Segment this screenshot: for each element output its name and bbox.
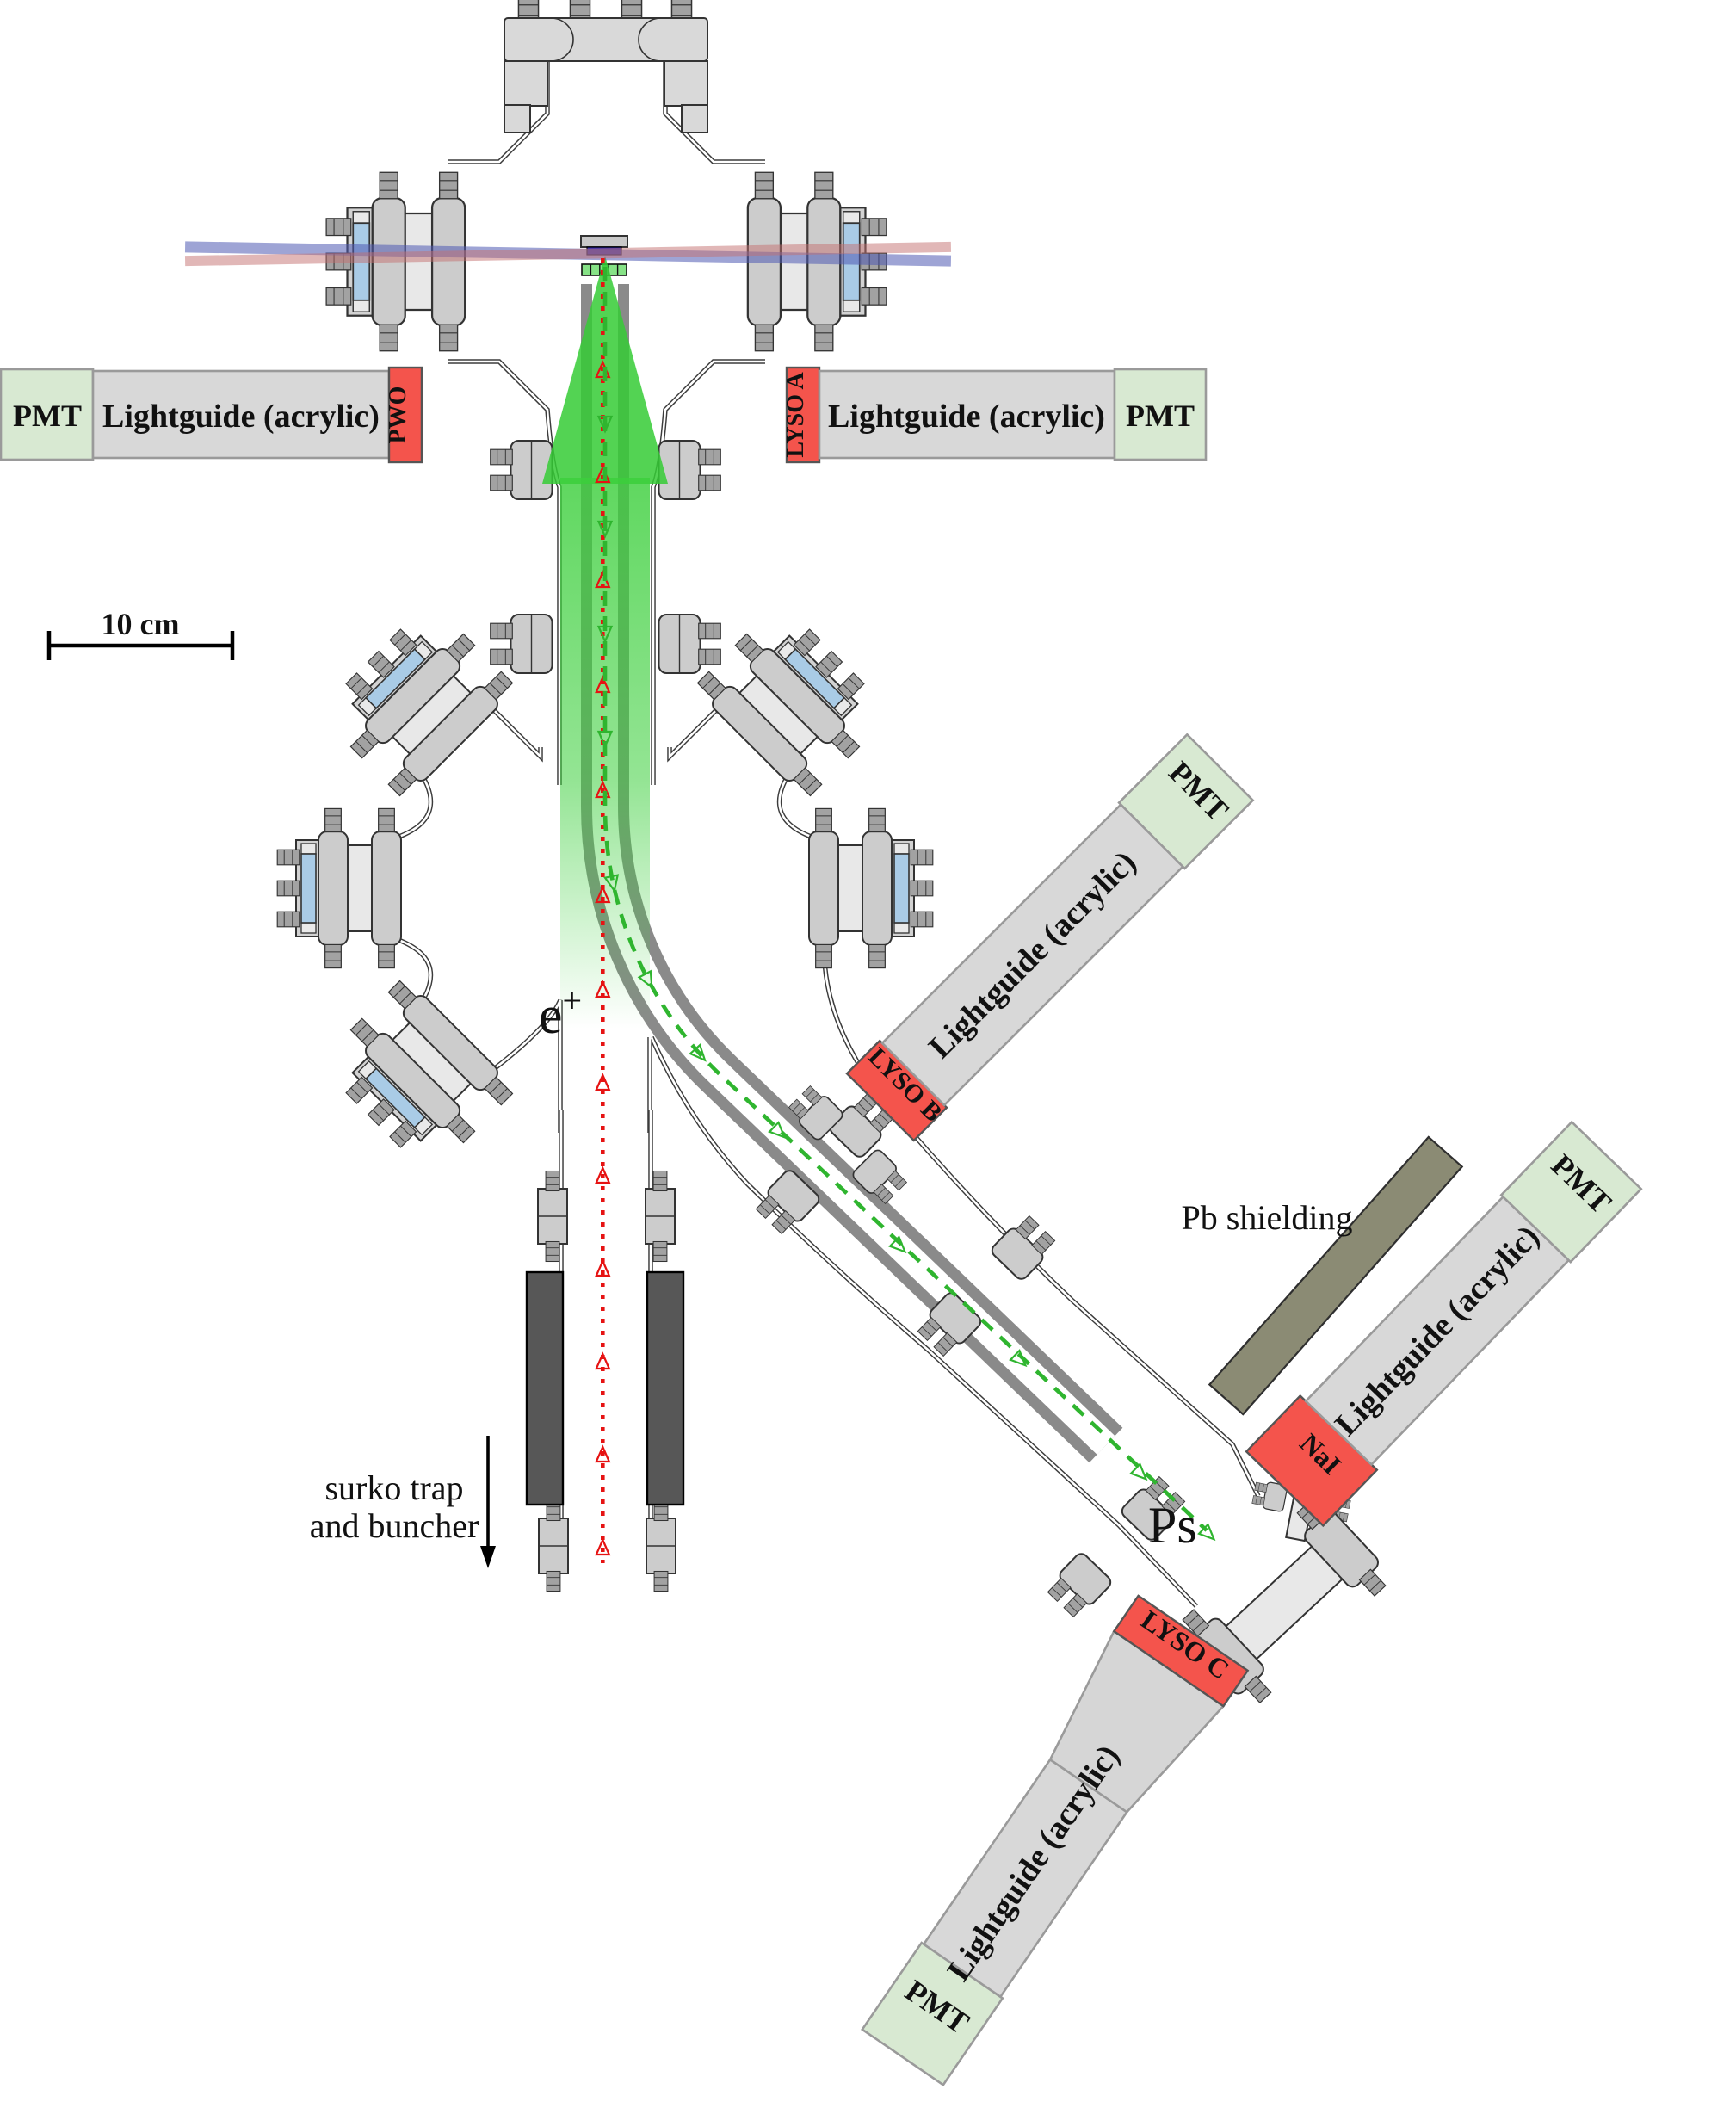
trap-label-line1: surko trap	[324, 1468, 463, 1507]
pwo-label: PWO	[385, 386, 411, 444]
port-ne	[693, 600, 893, 801]
trap-label-line2: and buncher	[310, 1506, 479, 1545]
port-nw	[317, 600, 517, 801]
pmt-left-label: PMT	[13, 399, 82, 433]
port-east	[809, 808, 933, 967]
diagram-canvas: PMT Lightguide (acrylic) PWO LYSO A Ligh…	[0, 0, 1736, 2108]
target-holder	[581, 236, 627, 247]
lightguide-b-label: Lightguide (acrylic)	[922, 844, 1143, 1066]
detector-left: PMT Lightguide (acrylic) PWO	[1, 368, 422, 462]
scale-bar: 10 cm	[49, 607, 232, 660]
detector-right: LYSO A Lightguide (acrylic) PMT	[782, 368, 1206, 462]
pb-label: Pb shielding	[1182, 1198, 1353, 1237]
lightguide-left-label: Lightguide (acrylic)	[102, 399, 380, 435]
ps-label: Ps	[1148, 1497, 1197, 1554]
detector-c: LYSO C Lightguide (acrylic) PMT	[848, 1594, 1248, 2094]
lyso-a-label: LYSO A	[782, 372, 809, 458]
lightguide-right-label: Lightguide (acrylic)	[828, 399, 1105, 435]
positron-label: e+	[539, 981, 582, 1045]
pmt-right-label: PMT	[1126, 399, 1195, 433]
top-blank-flange	[504, 18, 707, 61]
port-west	[277, 808, 401, 967]
trap-arrow-head	[480, 1546, 496, 1568]
scale-bar-label: 10 cm	[102, 607, 180, 641]
port-sw	[317, 976, 517, 1177]
laser-beams	[185, 241, 951, 266]
flange-shoulder	[504, 61, 547, 106]
apparatus-diagram: PMT Lightguide (acrylic) PWO LYSO A Ligh…	[0, 0, 1736, 2108]
buncher-electrodes	[527, 1272, 683, 1505]
